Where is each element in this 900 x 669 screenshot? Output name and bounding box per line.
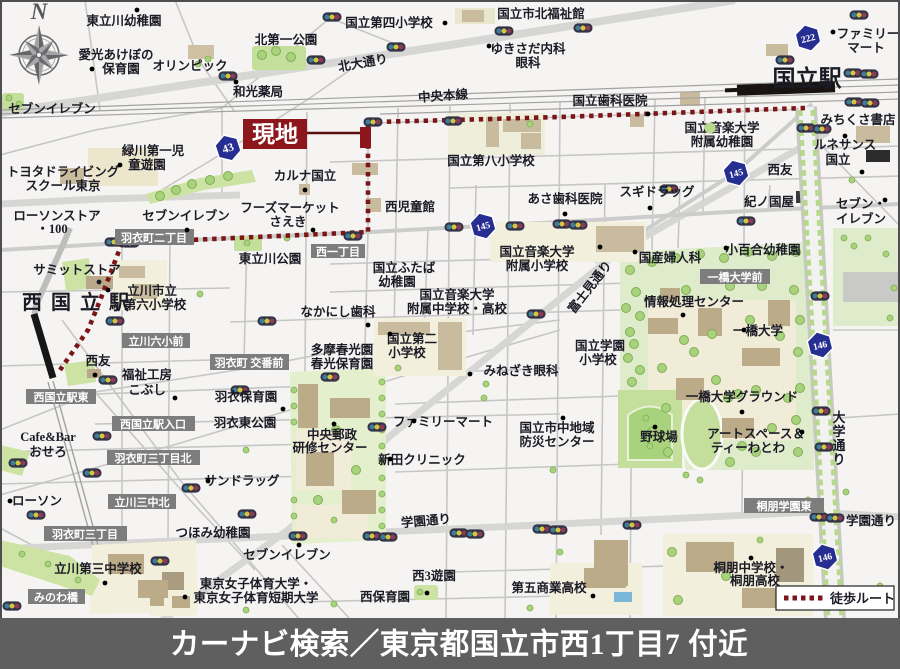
svg-text:西国立駅: 西国立駅 [22, 290, 138, 314]
svg-text:オリンピック: オリンピック [152, 59, 227, 73]
svg-text:アートスペース＆: アートスペース＆ [707, 427, 805, 441]
svg-text:一橋大学: 一橋大学 [733, 323, 784, 338]
svg-text:スギドラッグ: スギドラッグ [619, 184, 695, 199]
svg-text:防災センター: 防災センター [519, 434, 594, 449]
svg-text:サンドラッグ: サンドラッグ [204, 473, 280, 488]
svg-text:カーナビ検索／東京都国立市西1丁目7 付近: カーナビ検索／東京都国立市西1丁目7 付近 [170, 627, 748, 661]
svg-text:スクール東京: スクール東京 [25, 178, 101, 193]
svg-text:緑川第一児: 緑川第一児 [122, 143, 185, 158]
svg-text:東京女子体育短期大学: 東京女子体育短期大学 [193, 590, 319, 605]
svg-text:第五商業高校: 第五商業高校 [511, 580, 587, 595]
svg-text:附属中学校・高校: 附属中学校・高校 [407, 301, 508, 316]
svg-text:大: 大 [832, 410, 845, 425]
svg-text:羽衣町二丁目: 羽衣町二丁目 [121, 231, 187, 245]
svg-text:一橋大学グラウンド: 一橋大学グラウンド [686, 389, 799, 404]
svg-text:なかにし歯科: なかにし歯科 [300, 304, 376, 319]
svg-text:西児童館: 西児童館 [385, 199, 435, 214]
svg-text:フーズマーケット: フーズマーケット [240, 200, 339, 215]
svg-text:愛光あけぼの: 愛光あけぼの [78, 47, 153, 62]
svg-text:ティーわとわ: ティーわとわ [711, 441, 785, 455]
svg-text:ファミリー: ファミリー [837, 27, 900, 41]
svg-text:・100: ・100 [36, 222, 67, 236]
svg-text:研修センター: 研修センター [292, 440, 367, 455]
svg-text:北第一公園: 北第一公園 [255, 32, 318, 47]
svg-text:附属幼稚園: 附属幼稚園 [691, 134, 754, 149]
svg-text:西一丁目: 西一丁目 [316, 246, 360, 259]
svg-text:国立市北福祉館: 国立市北福祉館 [497, 6, 585, 21]
svg-text:桐朋学園東: 桐朋学園東 [757, 499, 813, 513]
svg-text:幼稚園: 幼稚園 [378, 274, 416, 289]
svg-text:国立ふたば: 国立ふたば [373, 260, 436, 275]
svg-text:学: 学 [832, 424, 845, 439]
svg-text:福祉工房: 福祉工房 [121, 367, 172, 382]
svg-text:り: り [832, 452, 845, 467]
svg-text:国立学園: 国立学園 [575, 338, 625, 353]
svg-text:国立第八小学校: 国立第八小学校 [447, 153, 535, 168]
svg-text:西保育園: 西保育園 [360, 589, 410, 604]
svg-text:東立川幼稚園: 東立川幼稚園 [86, 13, 161, 28]
svg-text:こぶし: こぶし [128, 383, 166, 397]
svg-text:現地: 現地 [252, 122, 298, 147]
svg-text:セブン・: セブン・ [836, 196, 886, 211]
svg-text:童遊園: 童遊園 [128, 157, 166, 172]
svg-text:小学校: 小学校 [578, 352, 617, 367]
svg-text:国立市中地域: 国立市中地域 [519, 420, 595, 435]
svg-text:ゆきさだ内科: ゆきさだ内科 [490, 41, 566, 56]
svg-text:立川六小前: 立川六小前 [129, 334, 184, 348]
svg-text:東京女子体育大学・: 東京女子体育大学・ [200, 576, 313, 591]
svg-text:国立歯科医院: 国立歯科医院 [572, 93, 648, 108]
svg-text:西友: 西友 [85, 353, 111, 368]
svg-text:徒歩ルート: 徒歩ルート [829, 591, 895, 606]
svg-text:おせろ: おせろ [29, 445, 67, 459]
svg-text:羽衣町三丁目: 羽衣町三丁目 [52, 527, 118, 541]
svg-text:あさ歯科医院: あさ歯科医院 [527, 191, 603, 206]
svg-text:通: 通 [832, 438, 845, 453]
svg-text:マート: マート [847, 41, 885, 55]
svg-text:ファミリーマート: ファミリーマート [393, 415, 493, 429]
svg-text:国立音楽大学: 国立音楽大学 [499, 244, 575, 259]
svg-text:立川三中北: 立川三中北 [115, 495, 170, 509]
svg-text:桐朋中学校・: 桐朋中学校・ [713, 560, 788, 575]
svg-text:情報処理センター: 情報処理センター [644, 294, 744, 309]
svg-text:サミットストア: サミットストア [33, 263, 121, 277]
svg-text:野球場: 野球場 [640, 429, 678, 444]
svg-text:国立第四小学校: 国立第四小学校 [345, 15, 433, 30]
svg-text:国立: 国立 [825, 152, 851, 167]
svg-text:N: N [30, 0, 49, 24]
svg-text:国立第二: 国立第二 [387, 331, 438, 346]
svg-text:イレブン: イレブン [836, 211, 886, 226]
svg-text:さえき: さえき [269, 215, 306, 229]
svg-text:国立駅: 国立駅 [773, 65, 842, 91]
svg-text:小百合幼稚園: 小百合幼稚園 [724, 242, 800, 257]
svg-text:トヨタドライビング: トヨタドライビング [7, 164, 120, 179]
svg-text:みちくさ書店: みちくさ書店 [820, 112, 896, 127]
svg-text:ローソンストア: ローソンストア [13, 209, 100, 223]
svg-text:ローソン: ローソン [12, 494, 62, 508]
svg-text:みのわ橋: みのわ橋 [34, 590, 79, 604]
svg-text:羽衣町 交番前: 羽衣町 交番前 [215, 356, 284, 370]
svg-text:羽衣町三丁目北: 羽衣町三丁目北 [115, 451, 192, 465]
svg-text:西国立駅東: 西国立駅東 [34, 390, 90, 404]
svg-text:国立音楽大学: 国立音楽大学 [684, 120, 760, 135]
svg-text:多摩春光園: 多摩春光園 [311, 342, 374, 357]
svg-text:附属小学校: 附属小学校 [506, 258, 569, 273]
svg-text:学園通り: 学園通り [846, 513, 896, 528]
svg-text:一橋大学前: 一橋大学前 [708, 270, 763, 284]
svg-text:セブンイレブン: セブンイレブン [243, 547, 331, 562]
svg-text:みねざき眼科: みねざき眼科 [483, 363, 559, 378]
svg-text:東立川公園: 東立川公園 [239, 251, 302, 266]
svg-text:立川市立: 立川市立 [127, 283, 178, 298]
svg-text:国産婦人科: 国産婦人科 [639, 250, 702, 265]
svg-text:桐朋高校: 桐朋高校 [730, 573, 781, 588]
svg-text:西3遊園: 西3遊園 [412, 568, 456, 583]
svg-text:中央郵政: 中央郵政 [307, 427, 358, 442]
svg-text:ルネサンス: ルネサンス [814, 138, 876, 152]
svg-text:セブンイレブン: セブンイレブン [8, 101, 96, 116]
svg-text:Cafe&Bar: Cafe&Bar [20, 430, 76, 444]
svg-text:第六小学校: 第六小学校 [124, 297, 187, 312]
svg-text:春光保育園: 春光保育園 [310, 356, 374, 371]
svg-text:国立音楽大学: 国立音楽大学 [419, 287, 495, 302]
svg-text:つほみ幼稚園: つほみ幼稚園 [175, 525, 250, 540]
svg-text:羽衣東公園: 羽衣東公園 [214, 415, 277, 430]
svg-text:和光薬局: 和光薬局 [232, 84, 283, 99]
svg-text:保育園: 保育園 [101, 61, 140, 76]
svg-text:羽衣保育園: 羽衣保育園 [215, 389, 278, 404]
svg-text:紀ノ国屋: 紀ノ国屋 [744, 194, 795, 209]
svg-text:小学校: 小学校 [387, 345, 426, 360]
svg-text:西友: 西友 [767, 162, 793, 177]
svg-text:眼科: 眼科 [515, 55, 541, 70]
svg-text:西国立駅入口: 西国立駅入口 [120, 417, 186, 431]
svg-text:セブンイレブン: セブンイレブン [142, 208, 230, 223]
svg-text:立川第三中学校: 立川第三中学校 [54, 561, 142, 576]
svg-text:カルナ国立: カルナ国立 [274, 168, 337, 183]
